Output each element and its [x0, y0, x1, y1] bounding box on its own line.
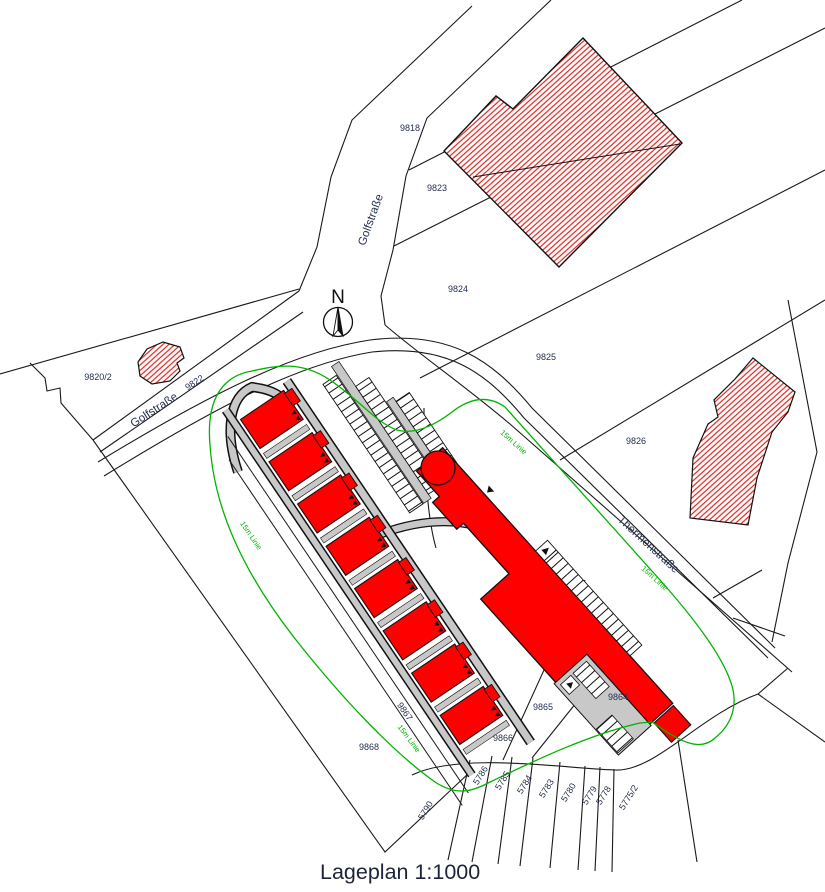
parcel-label-9824: 9824 [448, 284, 468, 294]
setback-label-north: 15m Linie [499, 428, 529, 456]
parcel-label-9866: 9866 [493, 733, 513, 743]
boundary-9826-east [772, 300, 817, 642]
parcel-label-5780: 5780 [559, 781, 578, 803]
boundary-9825-9826 [560, 300, 825, 460]
se-parcel-line [758, 694, 825, 742]
site-plan-page: 9867 N Golfstraß [0, 0, 825, 892]
parcel-label-9825: 9825 [536, 352, 556, 362]
setback-label-south: 15m Linie [396, 723, 423, 754]
parcel-label-9867: 9867 [395, 700, 414, 722]
parcel-label-5783: 5783 [537, 777, 556, 799]
fan-line [678, 740, 697, 862]
plan-caption: Lageplan 1:1000 [320, 860, 480, 884]
north-label: N [331, 287, 345, 308]
parcel-label-9820-2: 9820/2 [84, 372, 112, 382]
parcel-label-5790: 5790 [416, 799, 435, 821]
street-label-golfstrasse-west: Golfstraße [129, 391, 181, 430]
fan-line [595, 767, 600, 871]
parcel-label-9818: 9818 [400, 123, 420, 133]
existing-building-west [138, 342, 184, 384]
parcel-label-5778: 5778 [594, 784, 613, 806]
setback-label-west: 15m Linie [238, 520, 264, 552]
site-plan-drawing: 9867 N Golfstraß [0, 0, 825, 892]
se-parcel-line [713, 570, 762, 598]
fan-line [550, 762, 560, 868]
parcel-label-9826: 9826 [626, 436, 646, 446]
north-arrow: N [324, 287, 353, 337]
parcel-label-9823: 9823 [427, 183, 447, 193]
parcel-label-9864: 9864 [608, 692, 628, 702]
fan-line [578, 766, 585, 870]
street-labels: Golfstraße Golfstraße Thermenstraße [129, 193, 681, 576]
street-label-golfstrasse-north: Golfstraße [356, 193, 386, 248]
existing-building-north [444, 38, 682, 267]
entrance-marker [484, 486, 494, 496]
parcel-label-9822: 9822 [183, 373, 205, 392]
fan-line [612, 769, 614, 872]
existing-building-east [690, 358, 795, 525]
parcel-label-9865: 9865 [533, 702, 553, 712]
parcel-label-5775-2: 5775/2 [617, 783, 640, 812]
parcel-label-9868: 9868 [359, 742, 379, 752]
